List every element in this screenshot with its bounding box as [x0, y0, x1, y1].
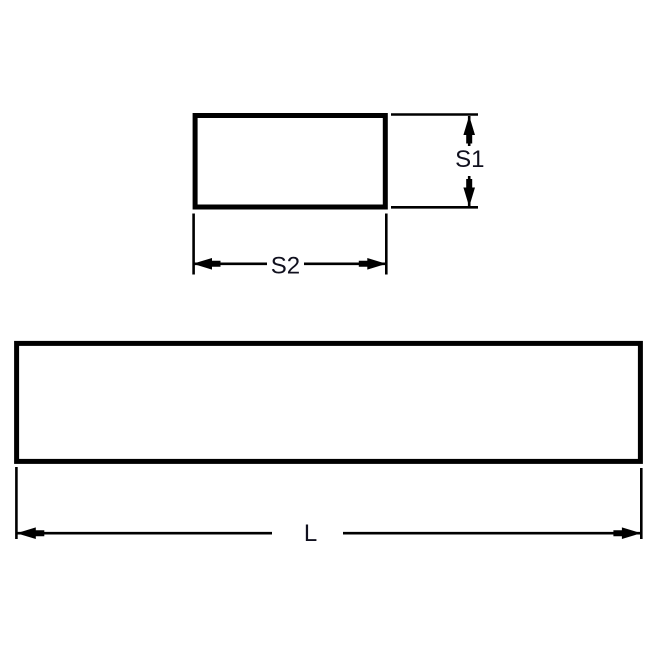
- svg-text:S1: S1: [455, 146, 484, 173]
- svg-text:S2: S2: [271, 252, 300, 279]
- svg-text:L: L: [304, 520, 317, 547]
